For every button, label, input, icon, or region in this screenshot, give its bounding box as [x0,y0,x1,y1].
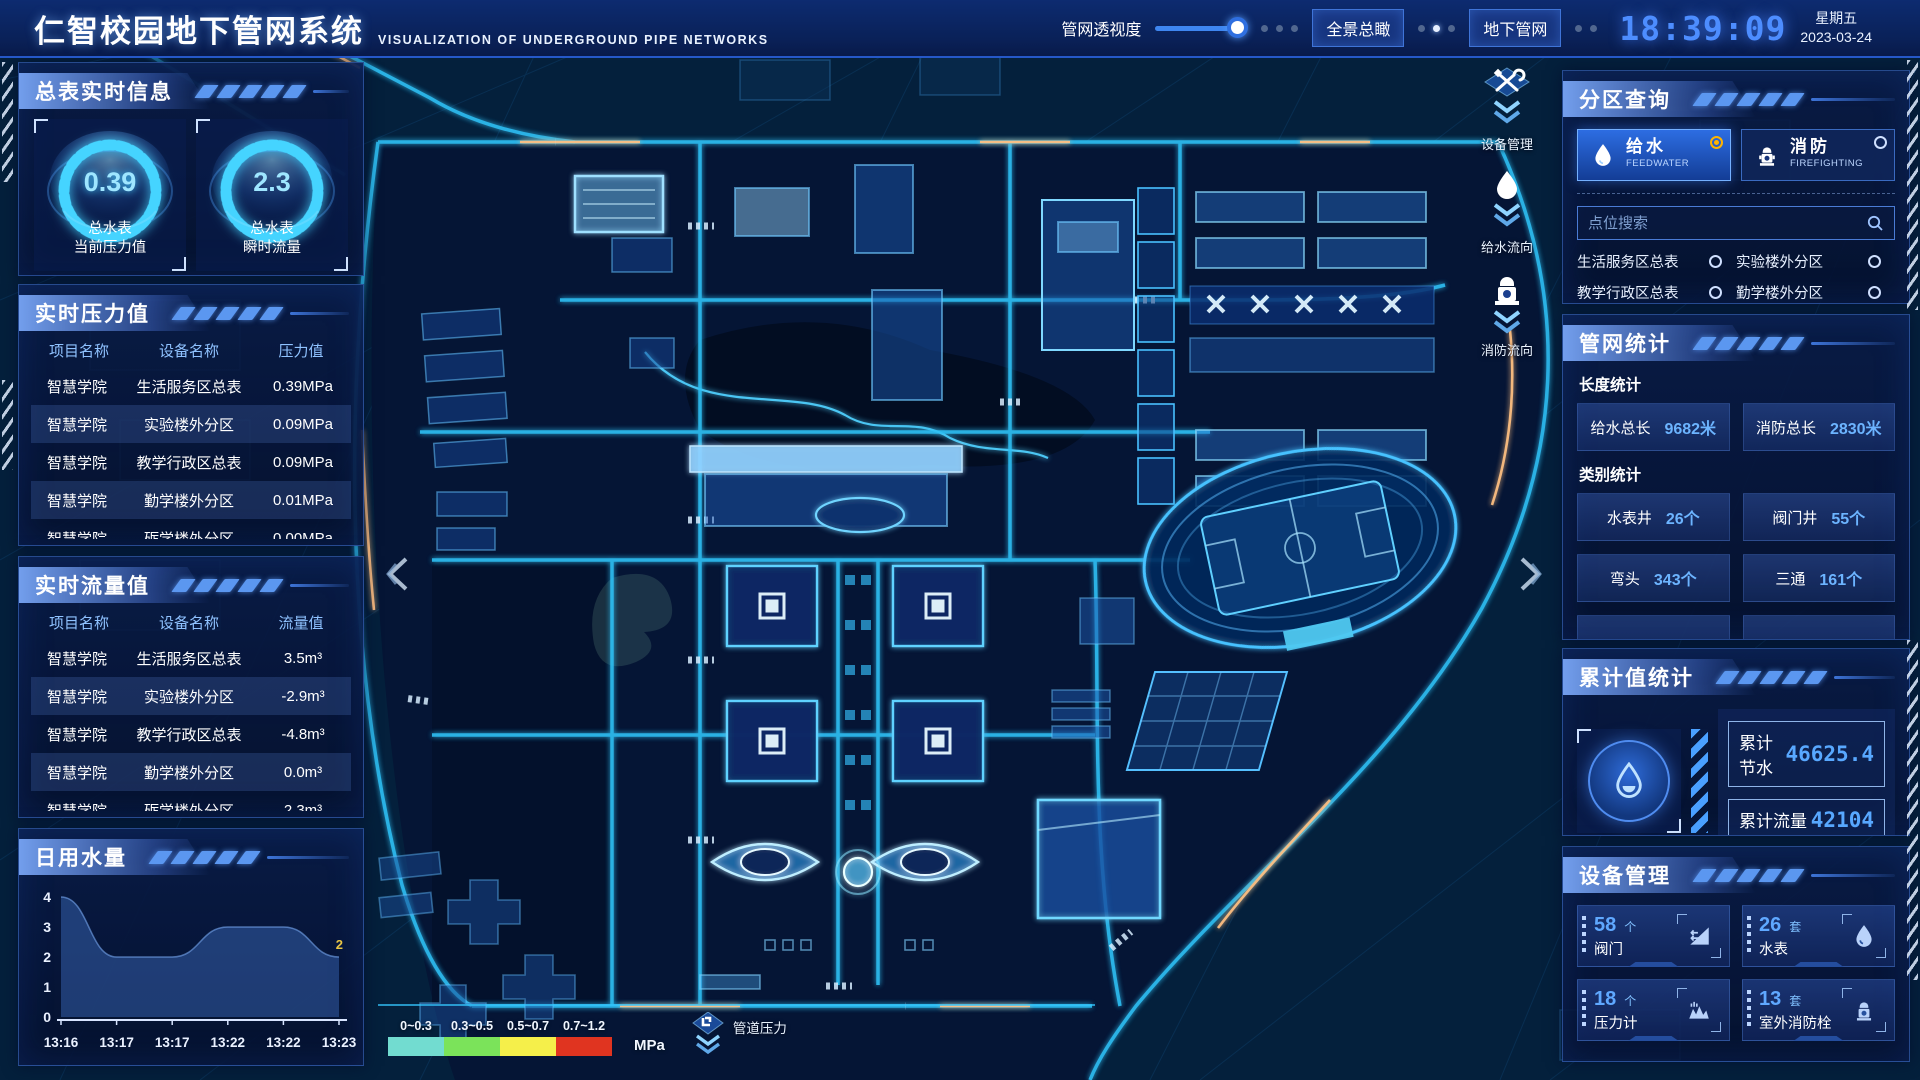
svg-text:13:17: 13:17 [155,1035,190,1050]
cumulative-flow: 累计流量 42104 [1728,799,1885,836]
pipe-pressure-icon [691,1012,725,1056]
firefighting-label: 消防 [1790,138,1863,155]
map-prev-arrow[interactable] [382,556,412,592]
svg-text:13:22: 13:22 [266,1035,301,1050]
legend-color-0 [388,1037,444,1056]
svg-text:13:22: 13:22 [211,1035,246,1050]
water-saving-icon-card [1577,729,1681,833]
pipe-pressure-toggle[interactable]: 管道压力 [691,1012,787,1056]
table-header: 项目名称 设备名称 流量值 [31,605,351,639]
table-row: 智慧学院教学行政区总表-4.8m³ [31,715,351,753]
zone-radio[interactable] [1868,255,1881,268]
legend-color-3 [556,1037,612,1056]
overview-button[interactable]: 全景总瞰 [1312,9,1404,47]
search-input[interactable] [1578,215,1866,232]
pressure-gauge-icon [1677,988,1721,1032]
svg-text:13:23: 13:23 [322,1035,357,1050]
gauge-value: 0.39 [84,167,137,197]
panel-realtime-pressure: 实时压力值 项目名称 设备名称 压力值 智慧学院生活服务区总表0.39MPa 智… [18,284,364,546]
length-stats-label: 长度统计 [1579,373,1909,395]
panel-title: 设备管理 [1563,860,1671,890]
gauge-label-line1: 总水表 [34,220,186,239]
transparency-slider[interactable] [1155,19,1247,37]
edge-hatch-decoration [2,62,13,182]
table-header: 项目名称 设备名称 压力值 [31,333,351,367]
svg-text:4: 4 [43,889,51,905]
feedwater-label: 给水 [1626,138,1689,155]
panel-zone-query: 分区查询 给水 FEEDWATER 消防 FIREFIG [1562,70,1910,304]
slash-decoration [1720,671,1830,684]
svg-text:2: 2 [336,937,343,952]
svg-text:3: 3 [43,919,51,935]
dashboard-screen: 仁智校园地下管网系统 VISUALIZATION OF UNDERGROUND … [0,0,1920,1080]
panel-cumulative: 累计值统计 累计节水 46625.4 累计流量 42104 [1562,648,1910,836]
table-row: 智慧学院实验楼外分区0.09MPa [31,405,351,443]
zone-item[interactable]: 勤学楼外分区 [1736,277,1895,304]
search-icon[interactable] [1866,214,1884,232]
gauge-value: 2.3 [253,167,291,197]
gauge-label-line2: 瞬时流量 [196,239,348,258]
stat-box: 消防总长2830米 [1743,403,1896,451]
legend-unit: MPa [634,1037,665,1054]
edge-hatch-decoration [2,380,13,470]
slider-handle[interactable] [1227,17,1248,38]
panel-pipe-stats: 管网统计 长度统计 给水总长9682米 消防总长2830米 类别统计 水表井26… [1562,314,1910,640]
zone-radio[interactable] [1709,255,1722,268]
transparency-label: 管网透视度 [1061,16,1141,40]
category-stats-label: 类别统计 [1579,463,1909,485]
stripe-decoration [1691,729,1708,833]
dots-decoration [1261,25,1298,32]
underground-button[interactable]: 地下管网 [1469,9,1561,47]
edge-hatch-decoration [1907,640,1918,980]
gauge-label-line1: 总水表 [196,220,348,239]
stat-box: 水表井26个 [1577,493,1730,541]
panel-title: 分区查询 [1563,84,1671,114]
stat-box-clipped [1743,615,1896,640]
table-row: 智慧学院勤学楼外分区0.01MPa [31,481,351,519]
legend-color-2 [500,1037,556,1056]
svg-text:13:16: 13:16 [44,1035,79,1050]
tool-device-management[interactable]: 设备管理 [1481,66,1533,153]
slash-decoration [1697,337,1807,350]
zone-radio[interactable] [1868,286,1881,299]
edge-hatch-decoration [1907,60,1918,310]
map-next-arrow[interactable] [1516,556,1546,592]
table-row: 智慧学院教学行政区总表0.09MPa [31,443,351,481]
panel-device-management: 设备管理 58个 阀门 26套 水表 [1562,846,1910,1062]
table-row: 智慧学院生活服务区总表3.5m³ [31,639,351,677]
water-drop-icon [1590,142,1616,168]
stat-box-clipped [1577,615,1730,640]
slash-decoration [153,851,263,864]
dots-decoration [1418,25,1455,32]
svg-text:1: 1 [43,979,51,995]
header-bar: 仁智校园地下管网系统 VISUALIZATION OF UNDERGROUND … [0,0,1920,58]
stat-box: 三通161个 [1743,554,1896,602]
stat-box: 阀门井55个 [1743,493,1896,541]
table-row: 智慧学院砺学楼外分区0.00MPa [31,519,351,539]
cumulative-water-saved: 累计节水 46625.4 [1728,721,1885,787]
panel-title: 累计值统计 [1563,662,1694,692]
table-row: 智慧学院砺学楼外分区2.3m³ [31,791,351,811]
svg-text:0: 0 [43,1009,51,1025]
gauge-pressure: 0.39 总水表 当前压力值 [34,119,186,271]
water-drop-icon [1481,169,1533,231]
device-card-water-meters[interactable]: 26套 水表 [1742,905,1895,967]
zone-item[interactable]: 教学行政区总表 [1577,277,1736,304]
panel-realtime-flow: 实时流量值 项目名称 设备名称 流量值 智慧学院生活服务区总表3.5m³ 智慧学… [18,556,364,818]
water-drop-icon [1588,740,1670,822]
firefighting-radio[interactable] [1874,136,1887,149]
hydrant-icon [1481,272,1533,334]
panel-title: 实时流量值 [19,570,150,600]
gauge-flow: 2.3 总水表 瞬时流量 [196,119,348,271]
feedwater-radio[interactable] [1710,136,1723,149]
gauge-label-line2: 当前压力值 [34,239,186,258]
panel-title: 日用水量 [19,842,127,872]
svg-text:13:17: 13:17 [99,1035,134,1050]
point-search [1577,206,1895,240]
app-subtitle: VISUALIZATION OF UNDERGROUND PIPE NETWOR… [378,33,769,47]
wrench-icon [1481,66,1533,128]
clock: 18:39:09 [1619,9,1786,48]
stat-box: 给水总长9682米 [1577,403,1730,451]
weekday: 星期五 [1815,9,1857,28]
feedwater-toggle[interactable]: 给水 FEEDWATER [1577,129,1731,181]
zone-radio[interactable] [1709,286,1722,299]
legend-color-1 [444,1037,500,1056]
slash-decoration [176,579,286,592]
valve-icon [1677,914,1721,958]
slash-decoration [176,307,286,320]
brand: 仁智校园地下管网系统 VISUALIZATION OF UNDERGROUND … [34,6,769,51]
panel-title: 实时压力值 [19,298,150,328]
dashed-divider [1577,193,1895,194]
zone-item[interactable]: 实验楼外分区 [1736,246,1895,277]
pressure-legend: 0~0.3 0.3~0.5 0.5~0.7 0.7~1.2 MPa 管道压力 [388,1012,787,1056]
device-card-hydrants[interactable]: 13套 室外消防栓 [1742,979,1895,1041]
date: 2023-03-24 [1800,28,1872,47]
slash-decoration [1697,93,1807,106]
device-card-pressure-gauges[interactable]: 18个 压力计 [1577,979,1730,1041]
panel-master-meter: 总表实时信息 0.39 总水表 当前压力值 [18,62,364,276]
device-card-valves[interactable]: 58个 阀门 [1577,905,1730,967]
hydrant-icon [1842,988,1886,1032]
panel-title: 总表实时信息 [19,76,173,106]
table-row: 智慧学院实验楼外分区-2.9m³ [31,677,351,715]
water-drop-icon [1842,914,1886,958]
stat-box: 弯头343个 [1577,554,1730,602]
slash-decoration [1697,869,1807,882]
slash-decoration [199,85,309,98]
svg-text:2: 2 [43,949,51,965]
daily-usage-chart: 0123413:1613:1713:1713:2213:2213:232 [25,879,357,1059]
zone-item[interactable]: 生活服务区总表 [1577,246,1736,277]
app-title: 仁智校园地下管网系统 [34,6,364,51]
table-row: 智慧学院生活服务区总表0.39MPa [31,367,351,405]
tool-firefighting-flow[interactable]: 消防流向 [1481,272,1533,359]
dots-decoration [1575,25,1597,32]
firefighting-toggle[interactable]: 消防 FIREFIGHTING [1741,129,1895,181]
panel-daily-usage: 日用水量 0123413:1613:1713:1713:2213:2213:23… [18,828,364,1066]
hydrant-icon [1754,142,1780,168]
tool-feedwater-flow[interactable]: 给水流向 [1481,169,1533,256]
table-row: 智慧学院勤学楼外分区0.0m³ [31,753,351,791]
panel-title: 管网统计 [1563,328,1671,358]
